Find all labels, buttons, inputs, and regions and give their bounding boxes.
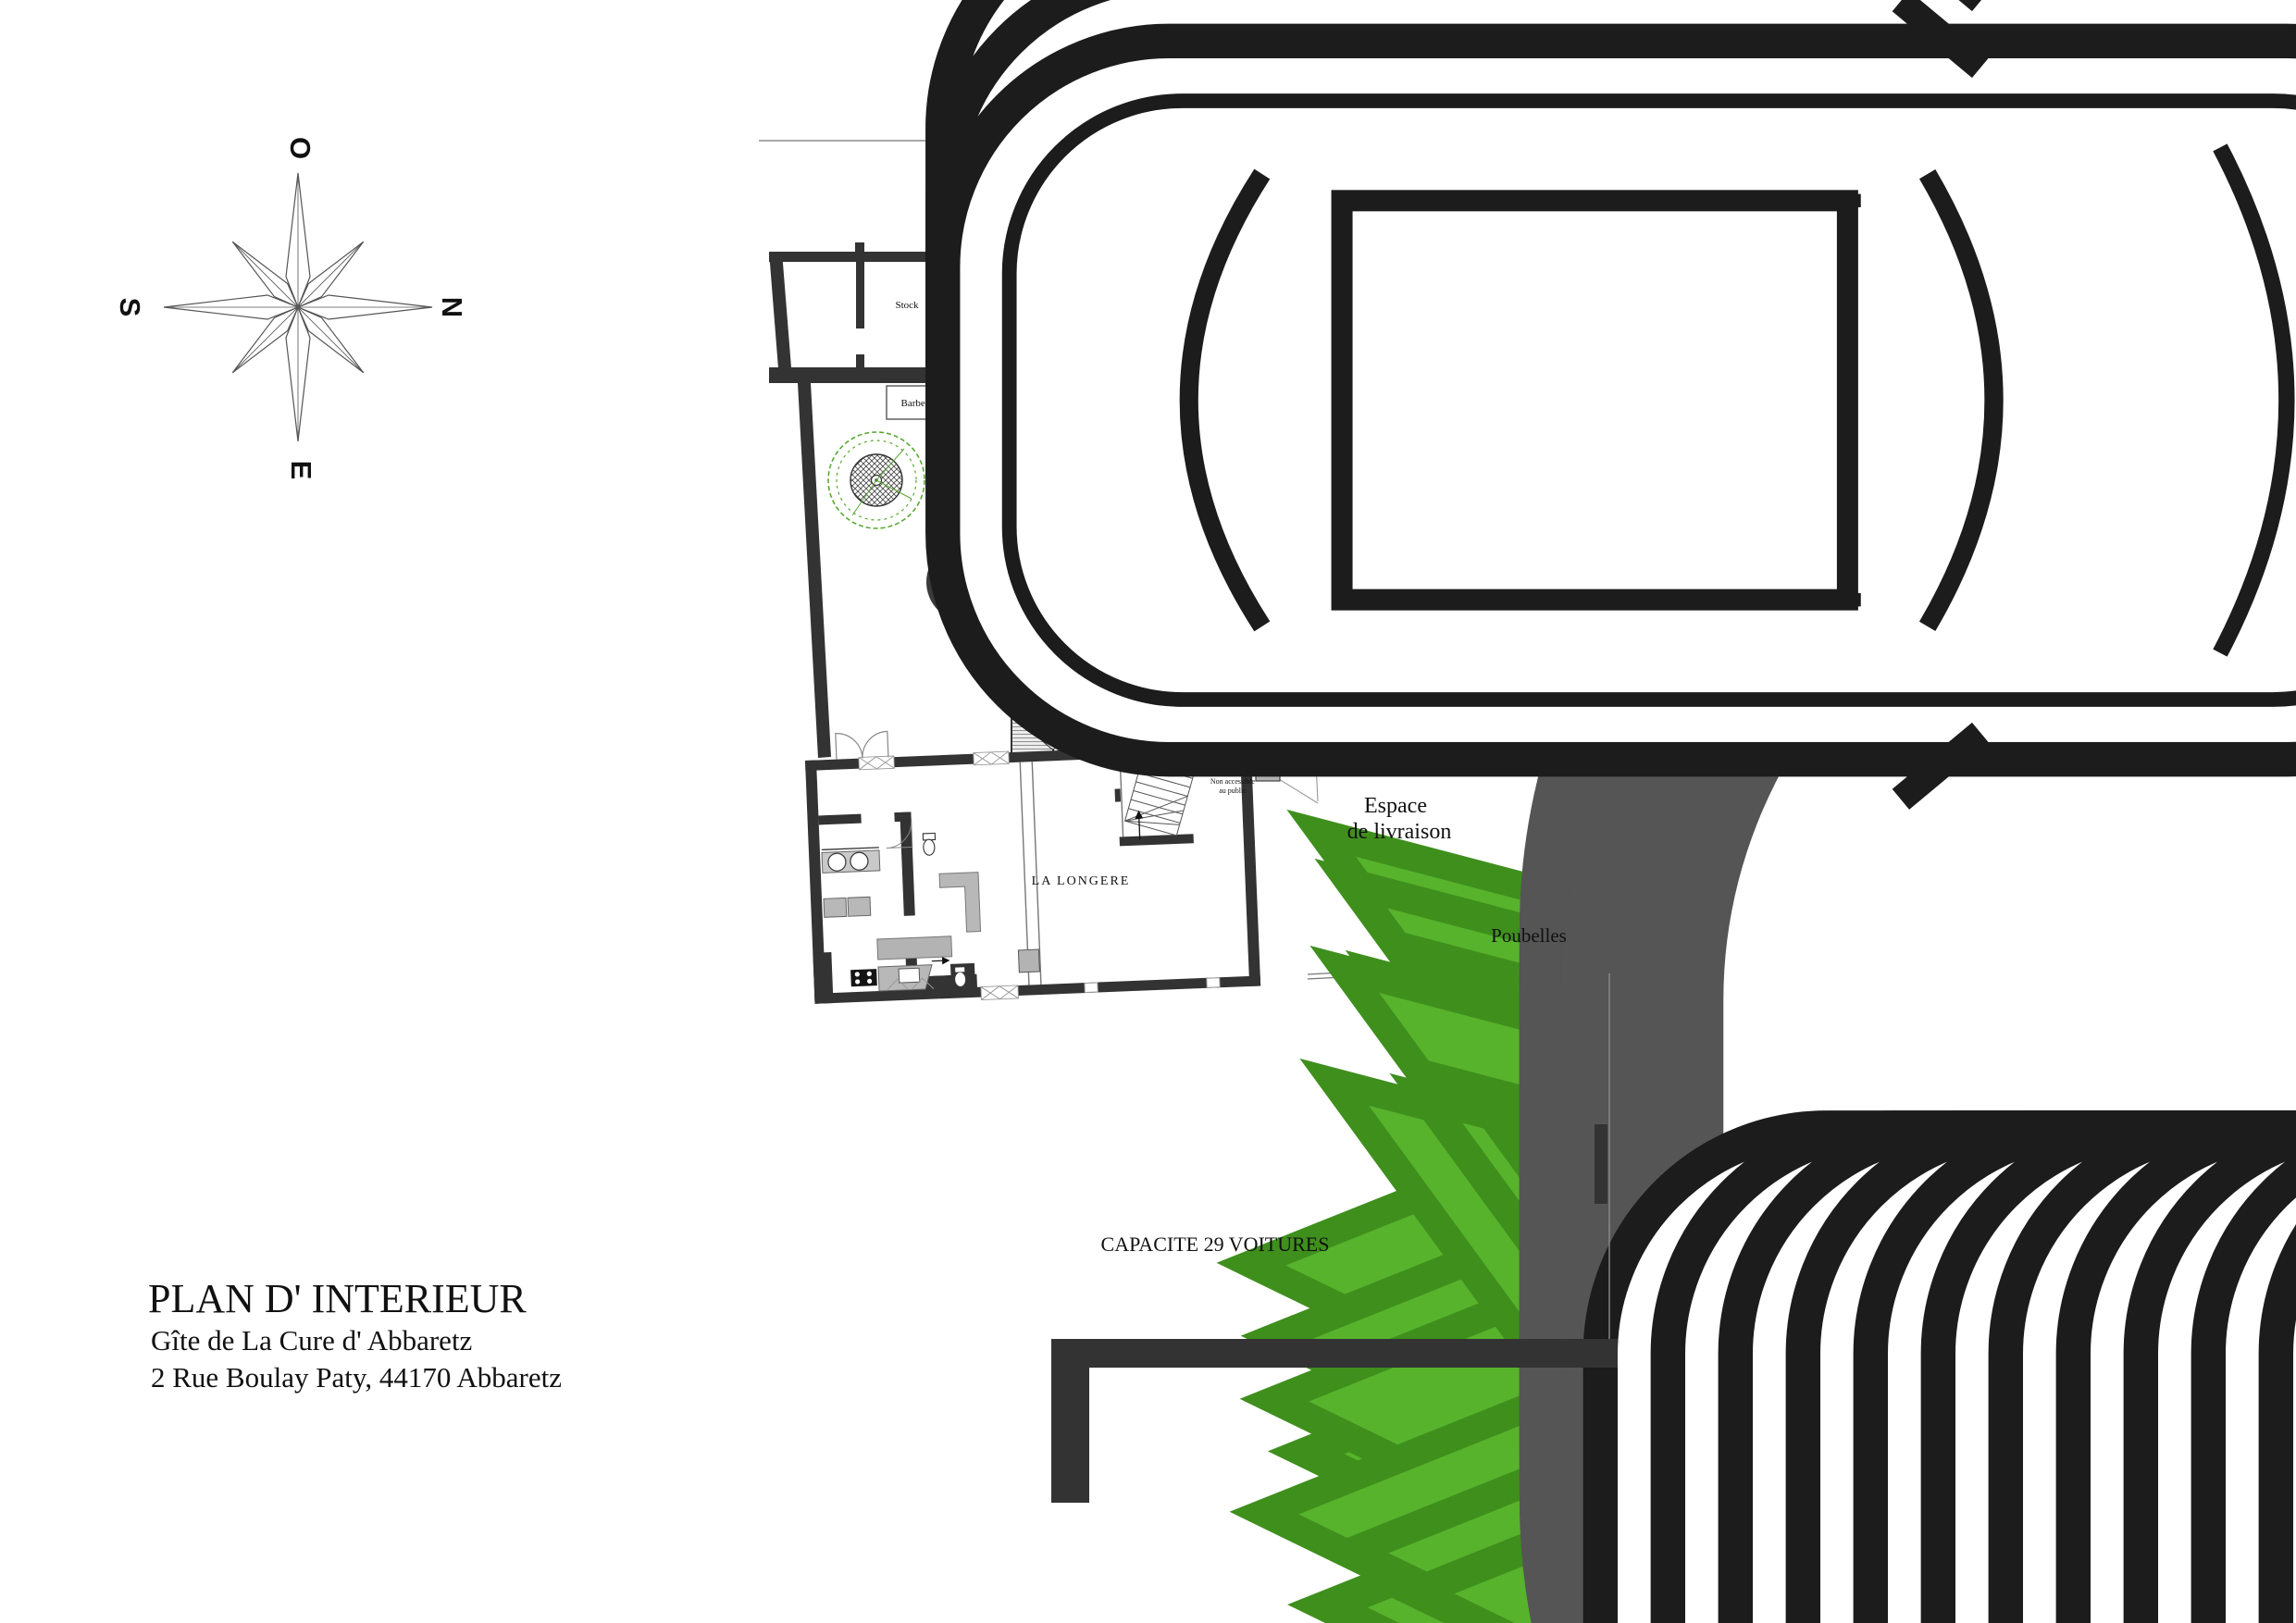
- delivery-label-2: de livraison: [1347, 820, 1452, 844]
- title-block: PLAN D' INTERIEUR Gîte de La Cure d' Abb…: [148, 1276, 562, 1394]
- stock-label: Stock: [895, 300, 919, 311]
- bins-label: Poubelles: [1491, 924, 1567, 947]
- large-tree-icon: [828, 432, 925, 528]
- plan-subtitle: Gîte de La Cure d' Abbaretz: [151, 1324, 472, 1357]
- compass-north-label: N: [436, 297, 468, 317]
- compass-rose: O S N E: [114, 137, 468, 479]
- capacity-label: CAPACITE 29 VOITURES: [1101, 1233, 1330, 1256]
- plan-address: 2 Rue Boulay Paty, 44170 Abbaretz: [151, 1361, 562, 1394]
- plan-title: PLAN D' INTERIEUR: [148, 1276, 527, 1321]
- wall-stub: [1595, 1124, 1607, 1204]
- parking-row: [1560, 1128, 2296, 1623]
- delivery-label-1: Espace: [1364, 794, 1427, 818]
- compass-west-label: O: [284, 137, 316, 159]
- not-public-label-1: Non accessible: [1210, 777, 1256, 786]
- floor-plan-page: O S N E RUE DES ECOLES RUE BOULAY PATY S…: [0, 0, 2296, 1623]
- not-public-label-2: au public: [1219, 787, 1247, 795]
- compass-south-label: S: [114, 298, 146, 317]
- longere-fixtures: [820, 788, 1125, 993]
- lower-parking: [943, 0, 2296, 799]
- floor-plan-canvas: O S N E RUE DES ECOLES RUE BOULAY PATY S…: [0, 0, 2296, 1623]
- compass-east-label: E: [285, 461, 317, 480]
- longere-label: LA LONGERE: [1032, 874, 1131, 888]
- garden-doors: [836, 731, 888, 759]
- compass-cardinal-points: [164, 173, 432, 441]
- car-icon: [943, 1, 2296, 799]
